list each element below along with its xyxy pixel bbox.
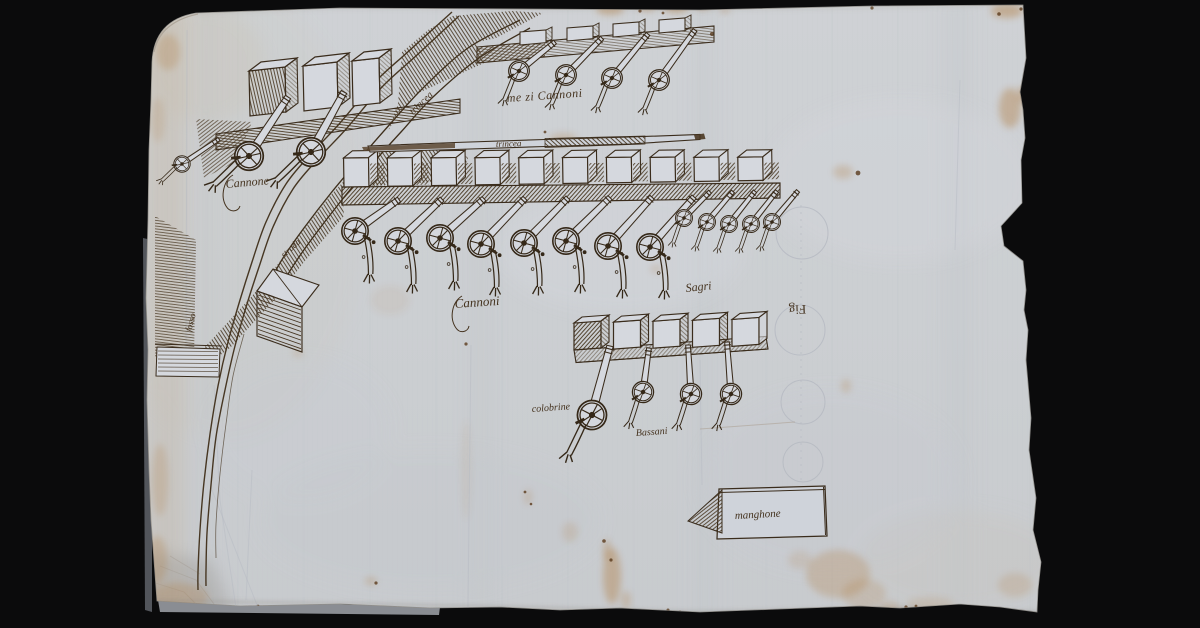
- svg-text:manghone: manghone: [735, 508, 782, 522]
- svg-text:Sagri: Sagri: [685, 278, 712, 295]
- svg-text:Fig: Fig: [788, 302, 806, 318]
- svg-text:Bassani: Bassani: [635, 426, 668, 439]
- svg-text:trincea: trincea: [496, 138, 522, 149]
- svg-text:Cannoni: Cannoni: [454, 293, 500, 311]
